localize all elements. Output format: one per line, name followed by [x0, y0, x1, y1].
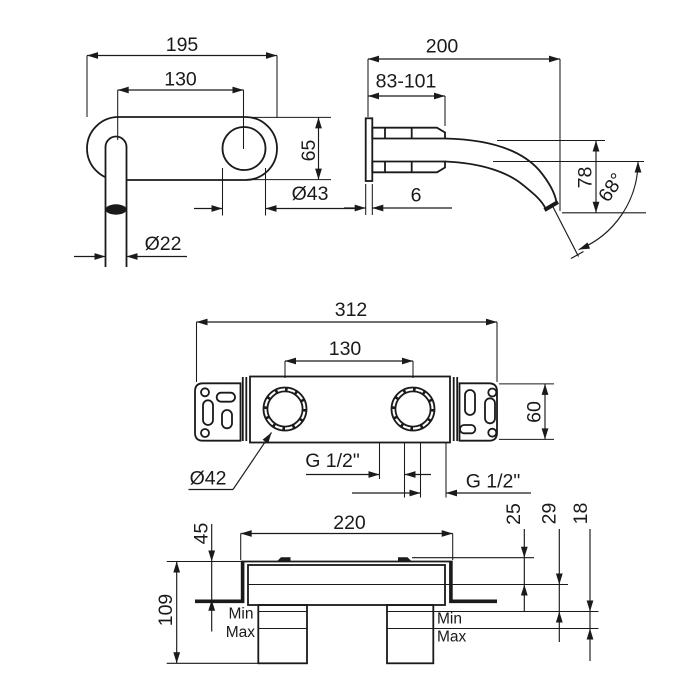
dim-label-depth-a: 25	[503, 503, 525, 525]
spout-curve-top	[445, 139, 557, 203]
connector-left	[258, 605, 307, 663]
dim-label-plate-height: 65	[298, 140, 320, 162]
view-spout-front: 195 130 65 Ø43 Ø22	[74, 34, 360, 267]
dim-label-cartridge-dia: Ø42	[190, 468, 227, 490]
label-min-right: Min	[437, 611, 462, 628]
view-body-side: Min Max Min Max 220 45 109 25 29 18	[155, 503, 599, 664]
dim-label-depth-b: 29	[539, 503, 561, 525]
bracket-right-slot-h	[460, 425, 475, 433]
label-min-left: Min	[229, 606, 254, 623]
dim-label-body-side-width: 220	[333, 512, 366, 534]
bracket-left-slot-h	[217, 393, 235, 402]
spring-clip-left	[277, 557, 291, 562]
wall-plate-side	[366, 118, 373, 181]
bracket-right-hole-top	[488, 389, 496, 397]
dim-label-bracket-height: 60	[524, 401, 546, 423]
z-bracket-right	[451, 562, 497, 602]
z-bracket-left	[195, 562, 243, 602]
dim-label-cartridge-spacing: 130	[329, 338, 362, 360]
bracket-left-hole-top	[201, 388, 209, 396]
dim-label-body-width: 312	[335, 299, 368, 321]
mount-sleeve-lower	[372, 162, 445, 173]
spring-clip-right	[398, 557, 412, 562]
dim-label-escutcheon-dia: Ø43	[292, 183, 329, 205]
dim-label-depth-c: 18	[570, 503, 592, 525]
dim-label-spout-length: 200	[426, 36, 459, 58]
dim-label-drop-height: 78	[575, 167, 597, 189]
cartridge-ring-left	[264, 388, 307, 431]
dim-label-thread-left: G 1/2"	[305, 450, 360, 472]
angle-tangent-line	[552, 204, 579, 257]
spout-outlet-opening	[105, 204, 126, 214]
technical-drawing-page: 195 130 65 Ø43 Ø22	[0, 0, 700, 700]
spout-tube	[106, 137, 127, 268]
dim-label-flange-height: 45	[191, 523, 213, 545]
bracket-right-slot-v1	[465, 390, 475, 415]
dim-label-outlet-angle: 68°	[594, 169, 629, 206]
spout-outlet-cut	[545, 202, 559, 210]
dim-label-plate-width: 195	[166, 34, 199, 56]
bracket-right-hole-bottom	[488, 429, 496, 437]
mixer-body	[250, 377, 450, 443]
cartridge-ring-right	[392, 388, 435, 431]
dim-label-plate-thickness: 6	[411, 185, 422, 207]
connector-right	[387, 605, 433, 663]
bracket-left-slot-v2	[222, 410, 232, 428]
view-spout-side: 200 83-101 6 78 68°	[344, 36, 646, 259]
label-max-right: Max	[437, 629, 467, 646]
dim-label-thread-right: G 1/2"	[466, 471, 521, 493]
bracket-left-slot-v1	[203, 400, 213, 425]
dim-label-hole-spacing: 130	[164, 69, 197, 91]
mount-sleeve-upper	[372, 128, 445, 139]
bracket-right-slot-v2	[485, 398, 495, 423]
spout-curve-bottom	[445, 162, 546, 209]
faucet-dimension-drawing: 195 130 65 Ø43 Ø22	[0, 0, 700, 700]
view-body-front: 312 130 60 Ø42 G 1/2" G 1/2"	[189, 299, 555, 498]
bracket-left-hole-bottom	[201, 429, 209, 437]
dim-label-total-height: 109	[155, 594, 177, 627]
dim-label-depth-range: 83-101	[376, 71, 437, 93]
label-max-left: Max	[226, 624, 256, 641]
dim-label-spout-dia: Ø22	[145, 233, 182, 255]
